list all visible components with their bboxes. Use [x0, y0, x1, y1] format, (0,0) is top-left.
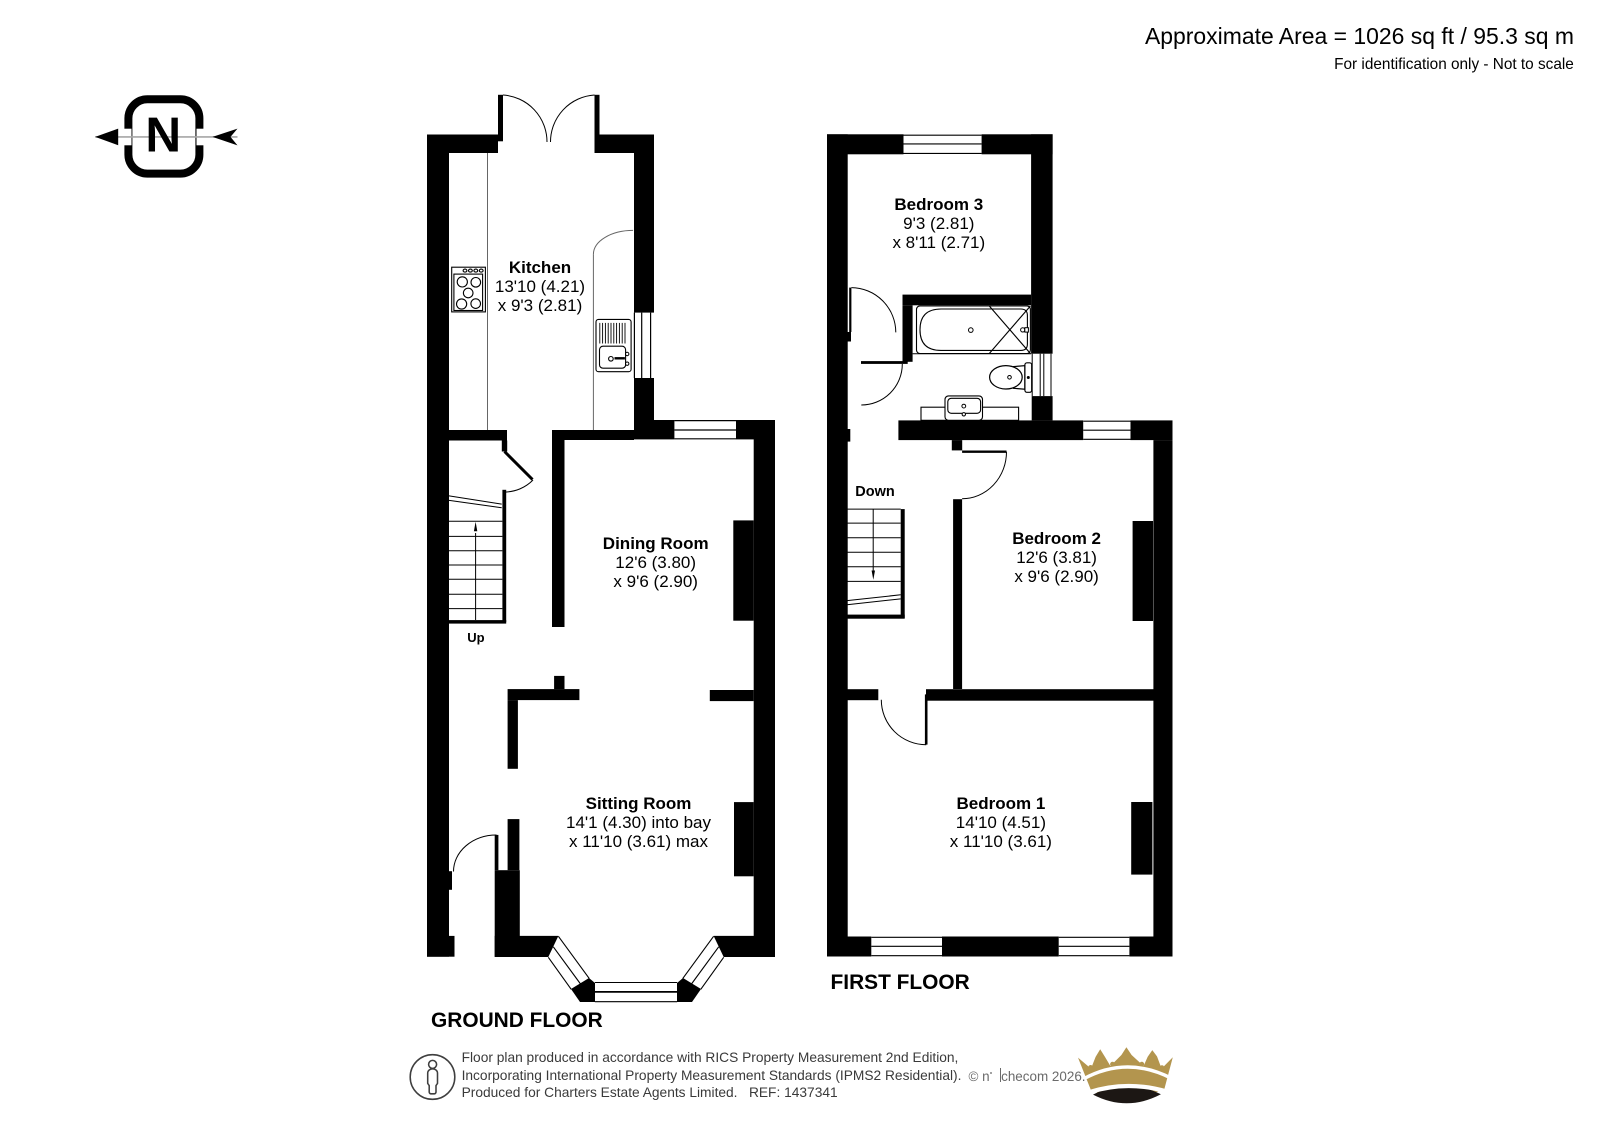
svg-text:N: N [145, 107, 181, 162]
